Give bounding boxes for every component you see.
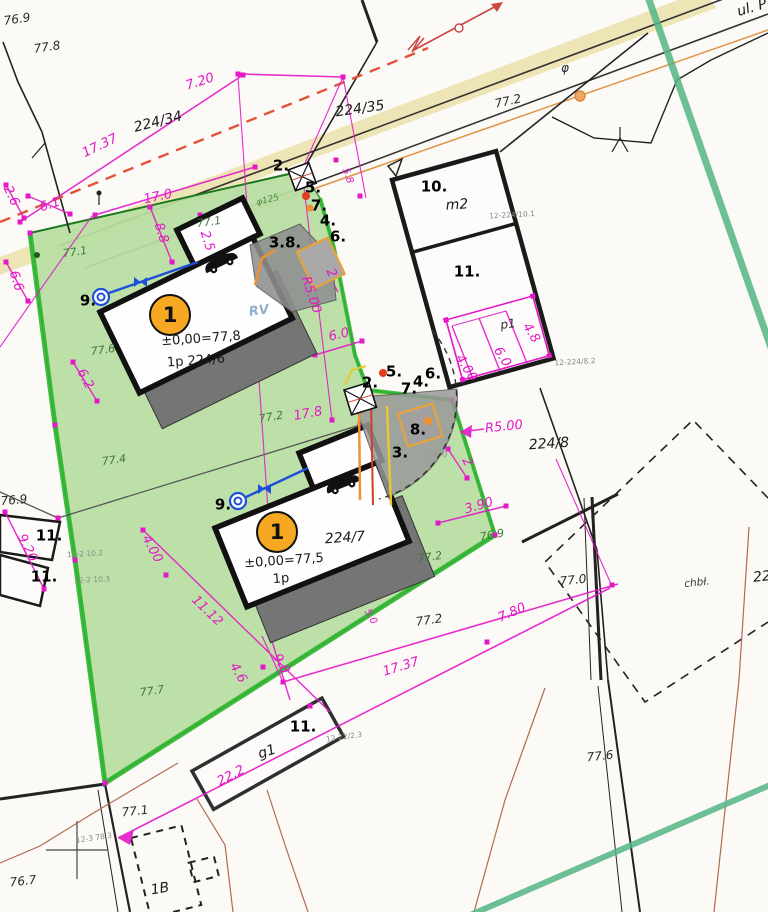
building-2-marker: 1 — [256, 511, 298, 553]
tree-icon — [34, 252, 40, 258]
building-2-number: 1 — [270, 520, 285, 544]
utility-pole-icon — [575, 91, 585, 101]
well-icon — [93, 289, 109, 305]
building-1-number: 1 — [163, 303, 178, 327]
utility-point-orange — [424, 417, 432, 425]
site-plan-drawing — [0, 0, 768, 912]
lamp-icon — [97, 191, 102, 196]
building-1-marker: 1 — [149, 294, 191, 336]
well-icon — [230, 493, 246, 509]
site-plan-page: { "colors":{"dimension_magenta":"#e318c8… — [0, 0, 768, 912]
utility-point-red — [379, 369, 387, 377]
utility-point-red — [302, 192, 310, 200]
utility-point-orange — [307, 205, 314, 212]
